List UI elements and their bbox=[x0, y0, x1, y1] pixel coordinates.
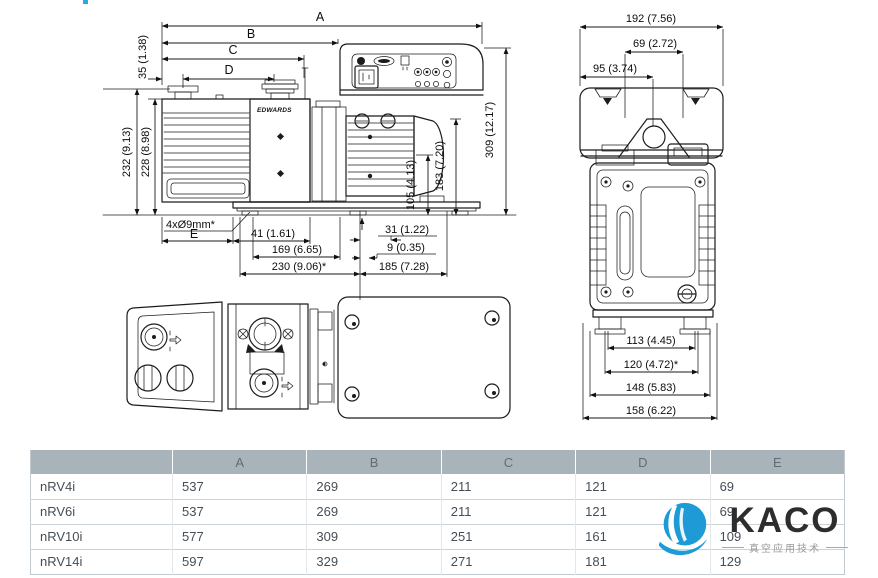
oil-caps bbox=[135, 365, 193, 391]
drain-plug bbox=[678, 285, 696, 303]
kaco-subtitle: 真空应用技术 bbox=[722, 540, 848, 555]
front-panel bbox=[250, 99, 310, 202]
oil-sight-glass bbox=[617, 206, 633, 280]
cooling-ribs bbox=[590, 205, 715, 285]
dim-31-label: 31 (1.22) bbox=[385, 224, 429, 236]
coupling-flange-top bbox=[310, 309, 334, 404]
value-cell: 537 bbox=[173, 499, 307, 524]
lifting-bracket bbox=[619, 119, 689, 157]
end-view-dimensions: 192 (7.56) 69 (2.72) 95 (3.74) 113 (4.45… bbox=[580, 13, 723, 420]
control-box bbox=[340, 44, 483, 95]
power-socket bbox=[355, 66, 378, 88]
motor bbox=[346, 114, 444, 202]
side-view-dimensions: A B C D 35 (1.38) 232 (9.13) 228 (8.98) … bbox=[103, 10, 511, 300]
lifting-hole bbox=[643, 126, 665, 148]
dim-120-label: 120 (4.72)* bbox=[624, 359, 679, 371]
model-cell: nRV10i bbox=[31, 524, 173, 549]
outlet-flange bbox=[262, 80, 298, 99]
dim-158-label: 158 (6.22) bbox=[626, 405, 676, 417]
value-cell: 577 bbox=[173, 524, 307, 549]
dim-228-label: 228 (8.98) bbox=[140, 127, 152, 177]
value-cell: 251 bbox=[441, 524, 575, 549]
top-view-pump-housing bbox=[127, 302, 222, 411]
model-cell: nRV4i bbox=[31, 474, 173, 499]
value-cell: 269 bbox=[307, 499, 441, 524]
dim-192-label: 192 (7.56) bbox=[626, 13, 676, 25]
dim-232-label: 232 (9.13) bbox=[121, 127, 133, 177]
outlet-knob-top bbox=[250, 369, 293, 397]
column-header-C: C bbox=[441, 450, 575, 474]
motor-cover-top bbox=[338, 297, 510, 418]
dim-230-label: 230 (9.06)* bbox=[272, 261, 327, 273]
column-header-A: A bbox=[173, 450, 307, 474]
column-header-B: B bbox=[307, 450, 441, 474]
dim-d-label: D bbox=[224, 63, 233, 77]
value-cell: 269 bbox=[307, 474, 441, 499]
end-view-feet bbox=[593, 310, 713, 334]
page: EDWARDS bbox=[0, 0, 878, 578]
dim-105-label: 105 (4.13) bbox=[405, 160, 417, 210]
value-cell: 211 bbox=[441, 474, 575, 499]
dim-183-label: 183 (7.20) bbox=[434, 141, 446, 191]
pump-side-view: EDWARDS bbox=[103, 44, 516, 215]
dim-69-label: 69 (2.72) bbox=[633, 38, 677, 50]
cover-screws bbox=[345, 311, 499, 401]
dim-9-label: 9 (0.35) bbox=[387, 242, 425, 254]
pump-top-view bbox=[127, 297, 510, 418]
base-plate bbox=[233, 202, 480, 215]
small-port bbox=[401, 56, 409, 65]
nameplate-panel bbox=[641, 187, 695, 277]
dim-e-label: E bbox=[190, 227, 198, 241]
inlet-port-top bbox=[238, 318, 293, 353]
value-cell: 211 bbox=[441, 499, 575, 524]
panel-dot bbox=[277, 133, 284, 140]
coupling-housing bbox=[312, 101, 346, 201]
value-cell: 271 bbox=[441, 549, 575, 574]
edwards-logo: EDWARDS bbox=[257, 107, 292, 114]
dim-169-label: 169 (6.65) bbox=[272, 244, 322, 256]
model-cell: nRV14i bbox=[31, 549, 173, 574]
column-header-E: E bbox=[710, 450, 844, 474]
kaco-logo: KACO 真空应用技术 bbox=[652, 492, 868, 566]
dim-b-label: B bbox=[247, 27, 255, 41]
value-cell: 597 bbox=[173, 549, 307, 574]
subtitle-dash bbox=[826, 547, 848, 548]
subtitle-dash bbox=[722, 547, 744, 548]
dim-113-label: 113 (4.45) bbox=[626, 335, 675, 347]
indicator-hole bbox=[357, 57, 365, 65]
kaco-sail-icon bbox=[652, 495, 714, 563]
pump-end-view bbox=[580, 88, 723, 334]
model-cell: nRV6i bbox=[31, 499, 173, 524]
connector-panel bbox=[352, 54, 456, 88]
dim-c-label: C bbox=[228, 43, 237, 57]
column-header-D: D bbox=[576, 450, 710, 474]
kaco-subtitle-text: 真空应用技术 bbox=[749, 540, 821, 555]
dim-185-label: 185 (7.28) bbox=[379, 261, 429, 273]
dim-41-label: 41 (1.61) bbox=[251, 228, 295, 240]
panel-dot bbox=[277, 170, 284, 177]
model-column-header bbox=[31, 450, 173, 474]
dim-a-label: A bbox=[316, 10, 325, 24]
oil-fill-knob bbox=[141, 324, 181, 351]
value-cell: 309 bbox=[307, 524, 441, 549]
dim-95-label: 95 (3.74) bbox=[593, 63, 637, 75]
pump-module bbox=[228, 304, 308, 409]
value-cell: 329 bbox=[307, 549, 441, 574]
button-cluster bbox=[414, 57, 451, 87]
kaco-wordmark: KACO bbox=[729, 503, 840, 538]
dim-148-label: 148 (5.83) bbox=[626, 382, 676, 394]
oil-box bbox=[167, 179, 249, 198]
value-cell: 537 bbox=[173, 474, 307, 499]
pump-dimension-drawing: EDWARDS bbox=[0, 0, 878, 445]
pump-body bbox=[162, 99, 310, 202]
dim-309-label: 309 (12.17) bbox=[484, 102, 496, 158]
dim-35-label: 35 (1.38) bbox=[137, 35, 149, 79]
